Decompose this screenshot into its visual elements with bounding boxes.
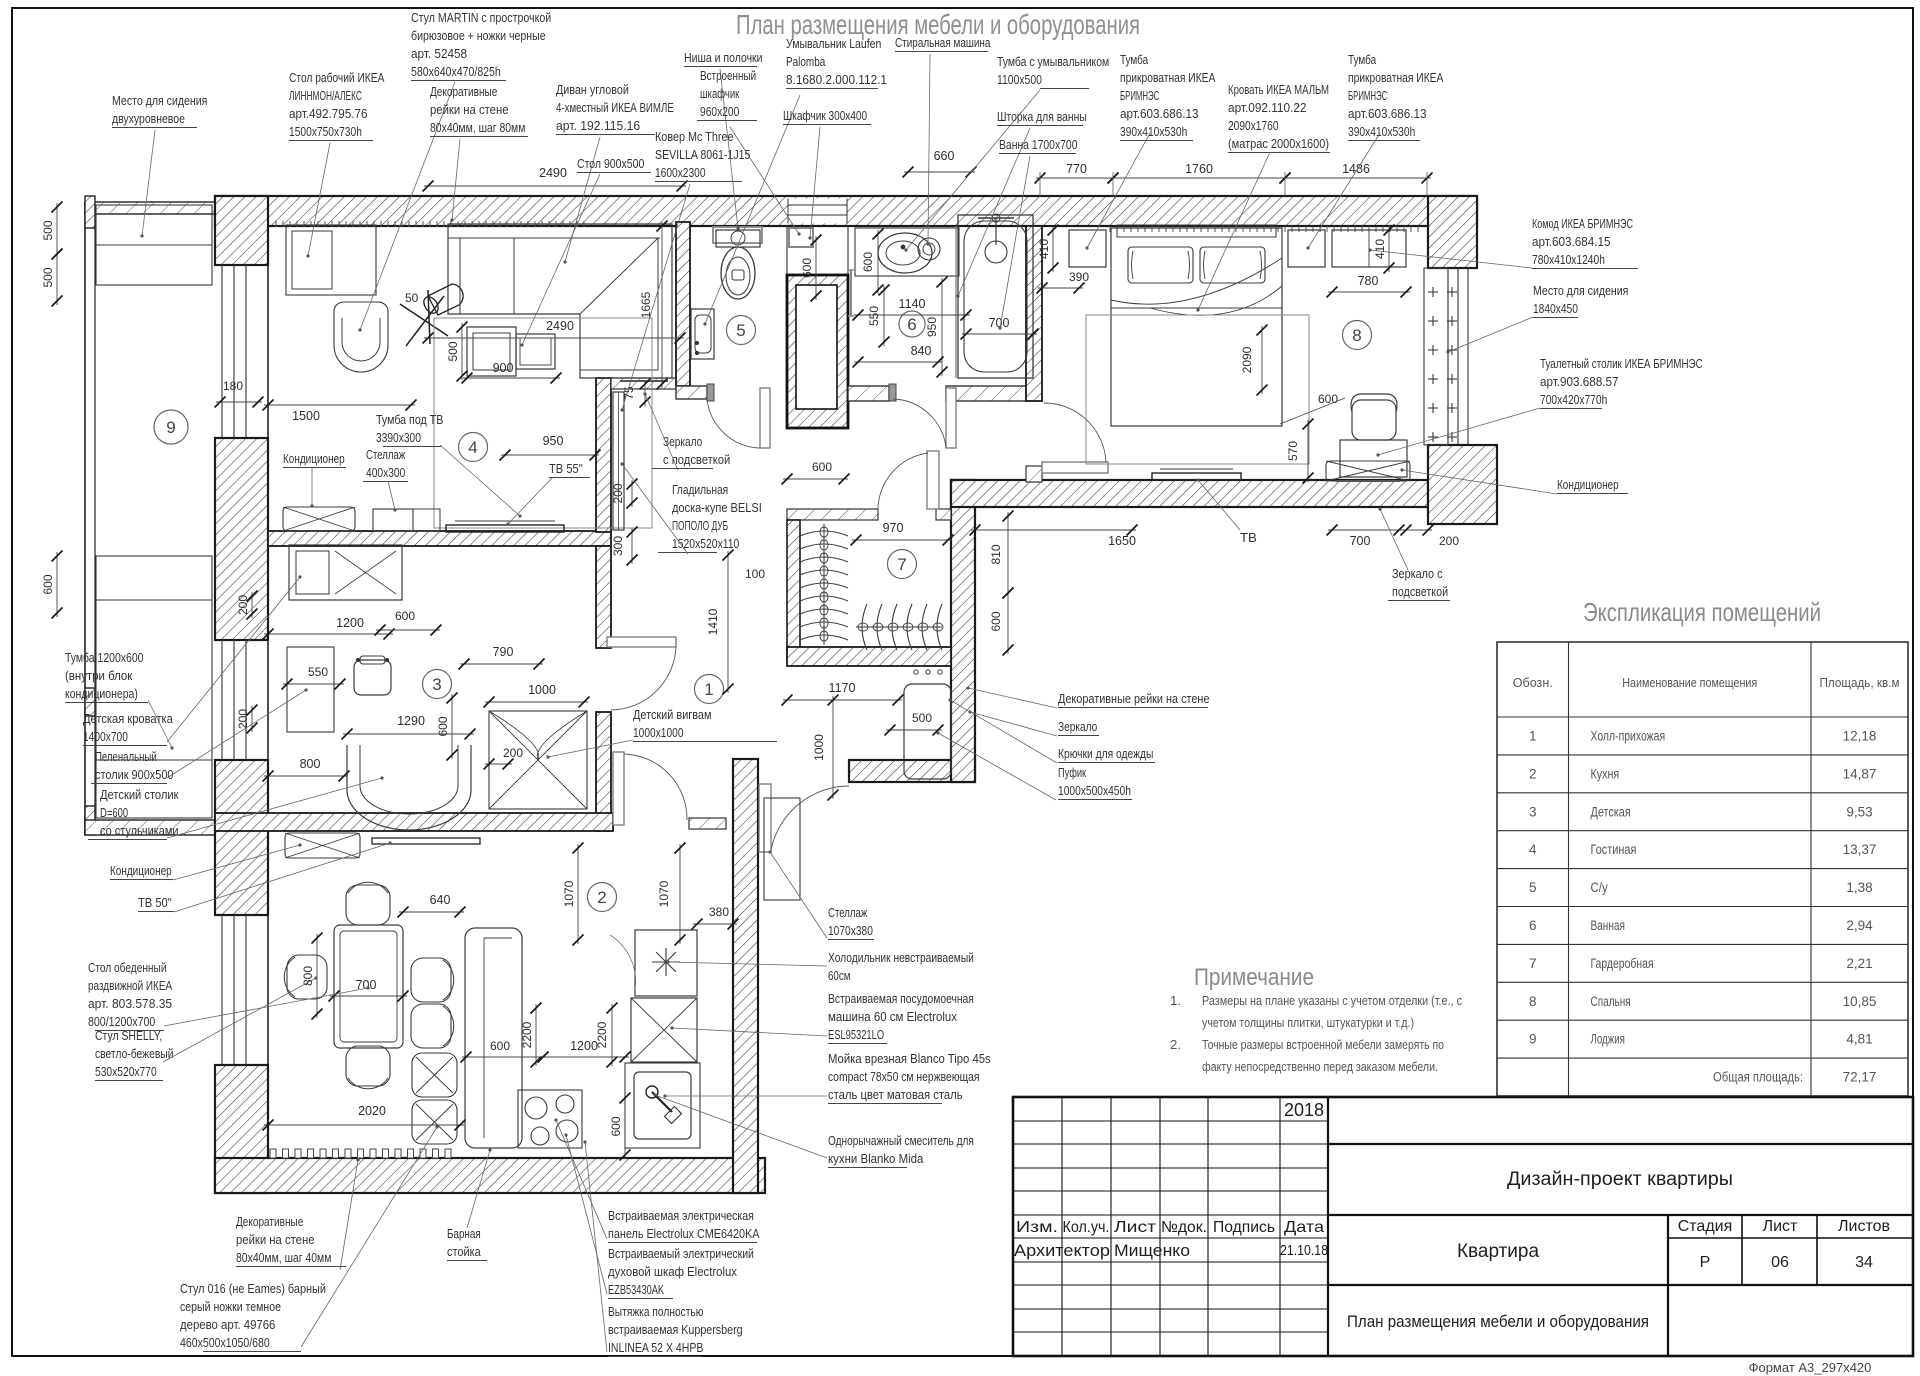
svg-text:72,17: 72,17 [1843, 1070, 1877, 1085]
svg-text:Тумба под ТВ: Тумба под ТВ [376, 412, 443, 427]
svg-text:Кухня: Кухня [1591, 766, 1620, 781]
svg-text:500: 500 [41, 267, 55, 287]
svg-text:13,37: 13,37 [1843, 842, 1877, 857]
svg-text:06: 06 [1771, 1254, 1789, 1271]
svg-text:8: 8 [1352, 326, 1361, 345]
svg-text:810: 810 [989, 544, 1003, 564]
svg-text:1600х2300: 1600х2300 [655, 165, 706, 180]
svg-text:Детский столик: Детский столик [100, 787, 179, 802]
svg-text:INLINEA 52 X 4НРВ: INLINEA 52 X 4НРВ [608, 1340, 704, 1355]
svg-text:100: 100 [745, 567, 765, 581]
svg-text:духовой шкаф Electrolux: духовой шкаф Electrolux [608, 1264, 737, 1279]
svg-text:1200: 1200 [336, 616, 364, 630]
svg-text:34: 34 [1855, 1254, 1873, 1271]
svg-text:800/1200х700: 800/1200х700 [88, 1014, 155, 1029]
svg-text:Экспликация помещений: Экспликация помещений [1583, 597, 1821, 627]
svg-text:9: 9 [1529, 1032, 1537, 1047]
svg-text:SEVILLA 8061-1J15: SEVILLA 8061-1J15 [655, 147, 750, 162]
svg-text:2.: 2. [1170, 1037, 1181, 1052]
svg-text:600: 600 [436, 716, 450, 736]
svg-text:Примечание: Примечание [1194, 964, 1314, 991]
svg-text:арт.092.110.22: арт.092.110.22 [1228, 100, 1307, 115]
svg-text:Лоджия: Лоджия [1591, 1032, 1625, 1047]
svg-text:14,87: 14,87 [1843, 766, 1877, 781]
svg-text:1200: 1200 [570, 1039, 598, 1053]
svg-text:8.1680.2.000.112.1: 8.1680.2.000.112.1 [786, 72, 887, 87]
svg-text:ТВ 50": ТВ 50" [138, 895, 172, 910]
svg-text:180: 180 [223, 379, 243, 393]
svg-text:Обозн.: Обозн. [1513, 675, 1553, 690]
svg-text:550: 550 [308, 665, 328, 679]
svg-text:770: 770 [1066, 162, 1087, 176]
svg-text:Точные размеры встроенной мебе: Точные размеры встроенной мебели замерят… [1202, 1037, 1444, 1052]
svg-text:530х520х770: 530х520х770 [95, 1064, 157, 1079]
svg-text:Вытяжка полностью: Вытяжка полностью [608, 1304, 703, 1319]
svg-text:Р: Р [1700, 1254, 1711, 1271]
svg-text:2490: 2490 [546, 319, 574, 333]
svg-text:Ванна 1700х700: Ванна 1700х700 [999, 137, 1078, 152]
svg-text:300: 300 [611, 536, 625, 556]
svg-text:арт. 192.115.16: арт. 192.115.16 [556, 118, 640, 133]
svg-text:Пеленальный: Пеленальный [95, 749, 157, 764]
svg-text:Стеллаж: Стеллаж [828, 905, 867, 920]
svg-text:550: 550 [867, 306, 881, 326]
svg-text:1000: 1000 [812, 734, 826, 761]
svg-text:2090: 2090 [1240, 346, 1254, 373]
svg-text:Декоративные: Декоративные [430, 84, 497, 99]
svg-text:2,21: 2,21 [1846, 956, 1872, 971]
svg-text:прикроватная ИКЕА: прикроватная ИКЕА [1348, 70, 1444, 85]
svg-text:80х40мм, шаг 80мм: 80х40мм, шаг 80мм [430, 120, 525, 135]
svg-text:кухни Blanko Mida: кухни Blanko Mida [828, 1151, 924, 1166]
svg-text:ЛИННМОН/АЛЕКС: ЛИННМОН/АЛЕКС [289, 88, 362, 103]
svg-text:панель Electrolux CME6420KA: панель Electrolux CME6420KA [608, 1226, 760, 1241]
svg-text:Подпись: Подпись [1213, 1219, 1275, 1236]
svg-text:390х410х530h: 390х410х530h [1348, 124, 1415, 139]
svg-text:950: 950 [925, 317, 939, 337]
svg-text:Квартира: Квартира [1457, 1241, 1540, 1262]
svg-text:600: 600 [395, 609, 415, 623]
svg-text:Стиральная машина: Стиральная машина [895, 35, 991, 50]
svg-text:Встроенный: Встроенный [700, 68, 756, 83]
svg-text:ТВ: ТВ [1240, 530, 1257, 545]
svg-text:Кондиционер: Кондиционер [110, 863, 172, 878]
svg-text:2490: 2490 [539, 166, 567, 180]
svg-text:дерево арт. 49766: дерево арт. 49766 [180, 1317, 275, 1332]
svg-text:700х420х770h: 700х420х770h [1540, 392, 1607, 407]
svg-text:Место для сидения: Место для сидения [1533, 283, 1628, 298]
svg-text:600: 600 [490, 1039, 510, 1053]
svg-text:600: 600 [812, 460, 832, 474]
svg-text:2018: 2018 [1284, 1100, 1324, 1120]
svg-text:Барная: Барная [447, 1226, 481, 1241]
svg-text:9: 9 [166, 418, 175, 437]
svg-text:раздвижной ИКЕА: раздвижной ИКЕА [88, 978, 172, 993]
svg-text:№док.: №док. [1161, 1219, 1207, 1236]
svg-text:12,18: 12,18 [1843, 728, 1877, 743]
svg-text:Кондиционер: Кондиционер [283, 451, 345, 466]
svg-text:380: 380 [709, 905, 729, 919]
svg-text:800: 800 [300, 757, 321, 771]
svg-text:1520х520х110: 1520х520х110 [672, 536, 739, 551]
svg-text:80х40мм, шаг 40мм: 80х40мм, шаг 40мм [236, 1250, 331, 1265]
svg-text:1650: 1650 [1108, 534, 1136, 548]
svg-text:Наименование помещения: Наименование помещения [1622, 675, 1757, 690]
svg-text:кондиционера): кондиционера) [65, 686, 138, 701]
svg-text:Тумба с умывальником: Тумба с умывальником [997, 54, 1109, 69]
svg-text:1500х750х730h: 1500х750х730h [289, 124, 362, 139]
svg-text:стойка: стойка [447, 1244, 481, 1259]
svg-text:1500: 1500 [292, 409, 320, 423]
svg-text:Ковер Mc Three: Ковер Mc Three [655, 129, 734, 144]
svg-text:2090х1760: 2090х1760 [1228, 118, 1279, 133]
svg-text:встраиваемая Kuppersberg: встраиваемая Kuppersberg [608, 1322, 743, 1337]
svg-text:3: 3 [432, 675, 441, 694]
svg-text:шкафчик: шкафчик [700, 86, 739, 101]
svg-text:D=600: D=600 [100, 805, 128, 820]
svg-text:1410: 1410 [706, 608, 720, 635]
svg-text:Зеркало: Зеркало [663, 434, 702, 449]
svg-text:970: 970 [883, 521, 904, 535]
svg-text:Пуфик: Пуфик [1058, 765, 1086, 780]
svg-text:640: 640 [430, 893, 451, 907]
svg-text:2: 2 [1529, 766, 1537, 781]
svg-text:Ванная: Ванная [1591, 918, 1625, 933]
svg-text:Площадь, кв.м: Площадь, кв.м [1820, 675, 1900, 690]
svg-text:арт.603.686.13: арт.603.686.13 [1120, 106, 1199, 121]
svg-text:1486: 1486 [1342, 162, 1370, 176]
svg-text:900: 900 [493, 361, 514, 375]
svg-text:410: 410 [1373, 239, 1387, 259]
svg-text:600: 600 [41, 574, 55, 594]
svg-text:1: 1 [1529, 728, 1537, 743]
svg-text:ESL95321LO: ESL95321LO [828, 1027, 884, 1042]
svg-text:1140: 1140 [899, 297, 926, 311]
svg-text:Спальня: Спальня [1591, 994, 1631, 1009]
svg-text:Стеллаж: Стеллаж [366, 447, 405, 462]
svg-text:Комод ИКЕА БРИМНЭС: Комод ИКЕА БРИМНЭС [1532, 216, 1633, 231]
svg-text:Стул SHELLY,: Стул SHELLY, [95, 1028, 162, 1043]
svg-text:1: 1 [704, 680, 713, 699]
svg-text:5: 5 [736, 321, 745, 340]
svg-text:21.10.18: 21.10.18 [1280, 1243, 1328, 1259]
svg-text:Крючки для одежды: Крючки для одежды [1058, 746, 1153, 761]
svg-text:арт.603.686.13: арт.603.686.13 [1348, 106, 1427, 121]
svg-text:950: 950 [543, 434, 564, 448]
svg-text:Шкафчик 300х400: Шкафчик 300х400 [783, 108, 867, 123]
svg-text:700: 700 [1350, 534, 1371, 548]
svg-text:580х640х470/825h: 580х640х470/825h [411, 64, 501, 79]
svg-text:1000х500х450h: 1000х500х450h [1058, 783, 1131, 798]
svg-text:Архитектор: Архитектор [1014, 1242, 1110, 1260]
svg-text:1070: 1070 [657, 880, 671, 907]
svg-text:Тумба: Тумба [1348, 52, 1377, 67]
svg-text:600: 600 [1318, 392, 1338, 406]
svg-text:Ниша и полочки: Ниша и полочки [684, 50, 763, 65]
svg-text:1170: 1170 [829, 681, 856, 695]
svg-text:5: 5 [1529, 880, 1537, 895]
svg-text:1290: 1290 [397, 714, 425, 728]
svg-text:Стол 900х500: Стол 900х500 [577, 156, 644, 171]
svg-text:Детская кроватка: Детская кроватка [83, 711, 173, 726]
svg-text:учетом толщины плитки, штукату: учетом толщины плитки, штукатурки и т.д.… [1202, 1015, 1414, 1030]
svg-text:Стул MARTIN с прострочкой: Стул MARTIN с прострочкой [411, 10, 551, 25]
svg-text:арт.903.688.57: арт.903.688.57 [1540, 374, 1619, 389]
svg-text:Кровать ИКЕА МАЛЬМ: Кровать ИКЕА МАЛЬМ [1228, 82, 1329, 97]
svg-text:Тумба 1200х600: Тумба 1200х600 [65, 650, 144, 665]
svg-text:доска-купе BELSI: доска-купе BELSI [672, 500, 762, 515]
svg-text:Шторка для ванны: Шторка для ванны [997, 109, 1087, 124]
svg-text:500: 500 [912, 711, 932, 725]
svg-text:столик 900х500: столик 900х500 [95, 767, 174, 782]
svg-text:200: 200 [1439, 534, 1459, 548]
svg-text:Стул 016 (не Eames) барный: Стул 016 (не Eames) барный [180, 1281, 326, 1296]
svg-text:6: 6 [1529, 918, 1537, 933]
svg-text:бирюзовое + ножки черные: бирюзовое + ножки черные [411, 28, 546, 43]
svg-text:светло-бежевый: светло-бежевый [95, 1046, 174, 1061]
svg-text:Декоративные: Декоративные [236, 1214, 303, 1229]
svg-text:500: 500 [446, 341, 460, 361]
svg-text:200: 200 [503, 746, 523, 760]
svg-text:200: 200 [611, 483, 625, 503]
svg-text:7: 7 [1529, 956, 1537, 971]
svg-text:600: 600 [609, 1116, 623, 1136]
svg-text:Размеры на плане указаны с уче: Размеры на плане указаны с учетом отделк… [1202, 993, 1462, 1008]
svg-text:Мищенко: Мищенко [1114, 1242, 1190, 1260]
svg-text:1000: 1000 [528, 683, 556, 697]
svg-text:3: 3 [1529, 804, 1537, 819]
svg-text:660: 660 [934, 149, 955, 163]
svg-text:машина 60 см Electrolux: машина 60 см Electrolux [828, 1009, 957, 1024]
svg-text:Тумба: Тумба [1120, 52, 1149, 67]
svg-text:Гладильная: Гладильная [672, 482, 728, 497]
svg-text:4: 4 [468, 438, 477, 457]
svg-text:50: 50 [405, 291, 419, 305]
svg-text:1100х500: 1100х500 [997, 72, 1042, 87]
svg-text:Место для сидения: Место для сидения [112, 93, 207, 108]
svg-text:арт.603.684.15: арт.603.684.15 [1532, 234, 1611, 249]
svg-text:Однорычажный смеситель для: Однорычажный смеситель для [828, 1133, 974, 1148]
svg-text:960х200: 960х200 [700, 104, 739, 119]
svg-text:ТВ 55": ТВ 55" [549, 461, 583, 476]
svg-text:780: 780 [1358, 274, 1379, 288]
svg-text:2020: 2020 [358, 1104, 386, 1118]
svg-text:Стадия: Стадия [1678, 1218, 1733, 1235]
svg-text:600: 600 [861, 252, 875, 272]
svg-text:2,94: 2,94 [1846, 918, 1873, 933]
svg-text:Умывальник Laufen: Умывальник Laufen [786, 36, 881, 51]
svg-text:ПОПОЛО ДУБ: ПОПОЛО ДУБ [672, 518, 728, 533]
svg-text:4: 4 [1529, 842, 1537, 857]
svg-text:500: 500 [41, 220, 55, 240]
svg-text:двухуровневое: двухуровневое [112, 111, 185, 126]
svg-text:(матрас 2000х1600): (матрас 2000х1600) [1228, 136, 1329, 151]
svg-text:EZB53430AK: EZB53430AK [608, 1282, 664, 1297]
svg-text:390: 390 [1069, 270, 1089, 284]
svg-text:Кондиционер: Кондиционер [1557, 477, 1619, 492]
svg-text:790: 790 [493, 645, 514, 659]
svg-text:со стульчиками: со стульчиками [100, 823, 179, 838]
svg-text:арт. 803.578.35: арт. 803.578.35 [88, 996, 172, 1011]
svg-text:Встраиваемая электрическая: Встраиваемая электрическая [608, 1208, 754, 1223]
svg-text:1.: 1. [1170, 993, 1181, 1008]
svg-text:рейки на стене: рейки на стене [236, 1232, 315, 1247]
svg-text:6: 6 [907, 315, 916, 334]
svg-text:60см: 60см [828, 968, 850, 983]
svg-text:400х300: 400х300 [366, 465, 405, 480]
svg-text:570: 570 [1286, 441, 1300, 461]
svg-text:1070: 1070 [562, 880, 576, 907]
svg-text:2: 2 [597, 888, 606, 907]
svg-text:200: 200 [236, 709, 250, 729]
svg-text:Формат А3_297х420: Формат А3_297х420 [1749, 1360, 1872, 1375]
svg-text:Стол рабочий ИКЕА: Стол рабочий ИКЕА [289, 70, 385, 85]
svg-text:2200: 2200 [520, 1021, 534, 1048]
svg-text:серый ножки темное: серый ножки темное [180, 1299, 281, 1314]
svg-text:Декоративные рейки на стене: Декоративные рейки на стене [1058, 691, 1210, 706]
svg-text:1070х380: 1070х380 [828, 923, 873, 938]
svg-text:БРИМНЭС: БРИМНЭС [1348, 88, 1388, 103]
svg-text:Туалетный столик ИКЕА БРИМНЭС: Туалетный столик ИКЕА БРИМНЭС [1540, 356, 1703, 371]
svg-text:БРИМНЭС: БРИМНЭС [1120, 88, 1160, 103]
svg-text:Встраиваемый электрический: Встраиваемый электрический [608, 1246, 754, 1261]
svg-text:Листов: Листов [1838, 1218, 1890, 1235]
svg-text:Общая площадь:: Общая площадь: [1713, 1070, 1803, 1085]
svg-text:10,85: 10,85 [1843, 994, 1877, 1009]
svg-text:Кол.уч.: Кол.уч. [1063, 1219, 1110, 1236]
svg-text:1840х450: 1840х450 [1533, 301, 1578, 316]
svg-text:7: 7 [897, 555, 906, 574]
svg-text:600: 600 [800, 258, 814, 278]
svg-text:Зеркало с: Зеркало с [1392, 566, 1443, 581]
svg-text:410: 410 [1037, 239, 1051, 259]
svg-text:1,38: 1,38 [1846, 880, 1872, 895]
svg-text:арт. 52458: арт. 52458 [411, 46, 467, 61]
svg-text:подсветкой: подсветкой [1392, 584, 1448, 599]
svg-text:390х410х530h: 390х410х530h [1120, 124, 1187, 139]
svg-text:1760: 1760 [1185, 162, 1213, 176]
svg-text:С/у: С/у [1591, 880, 1608, 895]
svg-text:Холл-прихожая: Холл-прихожая [1591, 728, 1666, 743]
svg-text:1000х1000: 1000х1000 [633, 725, 684, 740]
svg-text:1400х700: 1400х700 [83, 729, 128, 744]
svg-text:арт.492.795.76: арт.492.795.76 [289, 106, 368, 121]
svg-text:Лист: Лист [1114, 1219, 1157, 1236]
svg-text:Лист: Лист [1763, 1218, 1798, 1235]
svg-text:4,81: 4,81 [1846, 1032, 1872, 1047]
svg-text:800: 800 [301, 966, 315, 986]
svg-text:Гардеробная: Гардеробная [1591, 956, 1654, 971]
svg-text:8: 8 [1529, 994, 1537, 1009]
svg-text:Встраиваемая посудомоечная: Встраиваемая посудомоечная [828, 991, 974, 1006]
svg-text:Диван угловой: Диван угловой [556, 82, 629, 97]
svg-text:9,53: 9,53 [1846, 804, 1872, 819]
svg-text:Детская: Детская [1591, 804, 1631, 819]
svg-text:460х500х1050/680: 460х500х1050/680 [180, 1335, 270, 1350]
svg-text:(внутри блок: (внутри блок [65, 668, 132, 683]
svg-text:Palomba: Palomba [786, 54, 826, 69]
svg-text:Мойка врезная Blanco Tipo 45s: Мойка врезная Blanco Tipo 45s [828, 1051, 991, 1066]
svg-text:План размещения мебели и обору: План размещения мебели и оборудования [1347, 1312, 1649, 1331]
svg-text:Дизайн-проект квартиры: Дизайн-проект квартиры [1507, 1169, 1733, 1190]
svg-text:факту непосредственно перед за: факту непосредственно перед заказом мебе… [1202, 1059, 1438, 1074]
svg-text:рейки на стене: рейки на стене [430, 102, 509, 117]
svg-text:сталь цвет матовая сталь: сталь цвет матовая сталь [828, 1087, 963, 1102]
svg-text:840: 840 [911, 344, 932, 358]
svg-text:Детский вигвам: Детский вигвам [633, 707, 712, 722]
svg-text:Холодильник невстраиваемый: Холодильник невстраиваемый [828, 950, 974, 965]
svg-text:Стол обеденный: Стол обеденный [88, 960, 167, 975]
svg-text:Дата: Дата [1284, 1219, 1324, 1236]
svg-text:600: 600 [989, 611, 1003, 631]
svg-text:compact 78х50 см нержвеющая: compact 78х50 см нержвеющая [828, 1069, 980, 1084]
svg-text:4-хместный ИКЕА ВИМЛЕ: 4-хместный ИКЕА ВИМЛЕ [556, 100, 674, 115]
svg-text:200: 200 [236, 595, 250, 615]
svg-text:Гостиная: Гостиная [1591, 842, 1637, 857]
svg-text:780х410х1240h: 780х410х1240h [1532, 252, 1605, 267]
svg-text:3390х300: 3390х300 [376, 430, 421, 445]
svg-text:Изм.: Изм. [1016, 1219, 1058, 1236]
svg-text:прикроватная ИКЕА: прикроватная ИКЕА [1120, 70, 1216, 85]
svg-text:Зеркало: Зеркало [1058, 719, 1097, 734]
